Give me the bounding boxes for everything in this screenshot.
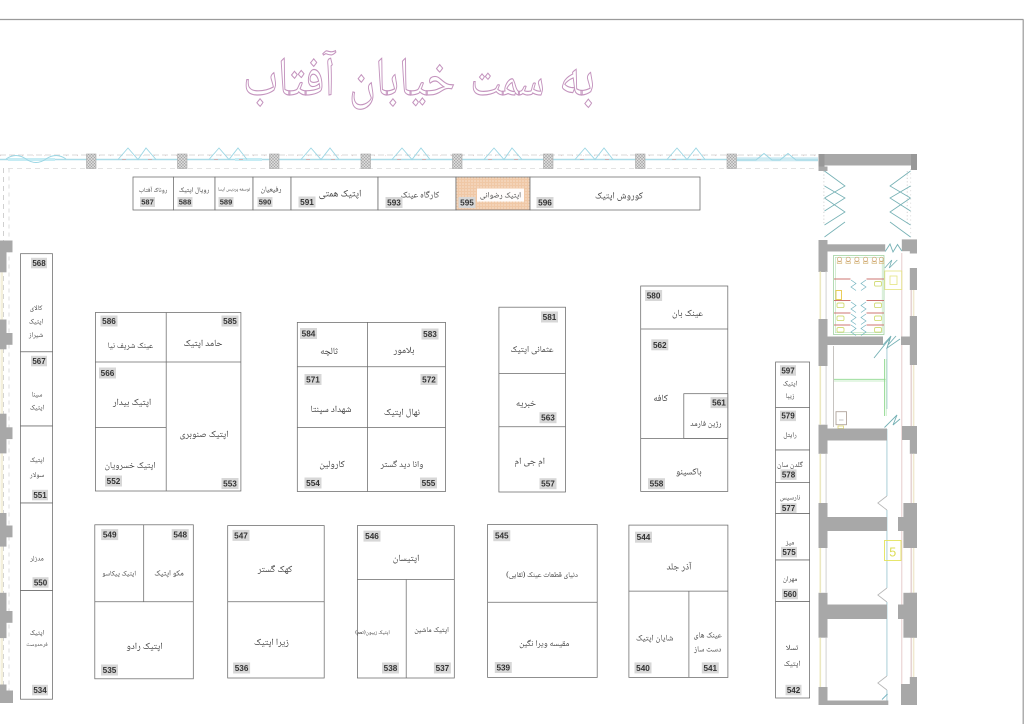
svg-text:545: 545: [495, 532, 509, 541]
svg-text:562: 562: [653, 341, 667, 350]
svg-text:589: 589: [220, 198, 233, 207]
svg-text:541: 541: [703, 664, 717, 673]
svg-text:537: 537: [436, 664, 450, 673]
svg-text:585: 585: [223, 317, 237, 326]
svg-text:575: 575: [782, 548, 796, 557]
svg-text:548: 548: [173, 531, 187, 540]
svg-text:571: 571: [306, 376, 320, 385]
svg-text:534: 534: [33, 686, 47, 695]
svg-text:580: 580: [647, 292, 661, 301]
svg-text:540: 540: [636, 664, 650, 673]
svg-text:557: 557: [541, 480, 555, 489]
svg-text:549: 549: [103, 531, 117, 540]
svg-text:544: 544: [637, 533, 651, 542]
svg-text:560: 560: [783, 590, 797, 599]
svg-text:588: 588: [179, 198, 192, 207]
svg-text:551: 551: [33, 491, 47, 500]
svg-text:563: 563: [541, 414, 555, 423]
svg-text:584: 584: [302, 330, 316, 339]
svg-text:578: 578: [782, 471, 796, 480]
svg-text:577: 577: [782, 504, 796, 513]
svg-text:554: 554: [306, 479, 320, 488]
svg-text:542: 542: [787, 686, 801, 695]
svg-text:558: 558: [650, 480, 664, 489]
svg-text:591: 591: [300, 198, 314, 207]
svg-text:579: 579: [781, 412, 795, 421]
svg-text:561: 561: [712, 399, 726, 408]
svg-text:538: 538: [384, 664, 398, 673]
svg-text:546: 546: [365, 532, 379, 541]
svg-text:590: 590: [259, 198, 272, 207]
svg-text:572: 572: [422, 376, 436, 385]
svg-text:581: 581: [543, 313, 557, 322]
svg-text:5: 5: [889, 546, 896, 560]
svg-text:552: 552: [107, 477, 121, 486]
svg-text:596: 596: [538, 199, 552, 208]
svg-text:539: 539: [496, 664, 510, 673]
svg-text:583: 583: [423, 330, 437, 339]
svg-text:550: 550: [34, 578, 48, 587]
svg-text:566: 566: [101, 369, 115, 378]
svg-text:547: 547: [234, 531, 248, 540]
svg-text:597: 597: [781, 366, 795, 375]
svg-text:586: 586: [102, 317, 116, 326]
svg-text:567: 567: [32, 357, 46, 366]
svg-text:595: 595: [460, 199, 474, 208]
svg-text:587: 587: [141, 198, 154, 207]
svg-text:535: 535: [103, 666, 117, 675]
svg-text:555: 555: [422, 479, 436, 488]
svg-text:593: 593: [387, 199, 401, 208]
svg-text:568: 568: [32, 259, 46, 268]
svg-text:536: 536: [235, 664, 249, 673]
svg-text:553: 553: [223, 480, 237, 489]
